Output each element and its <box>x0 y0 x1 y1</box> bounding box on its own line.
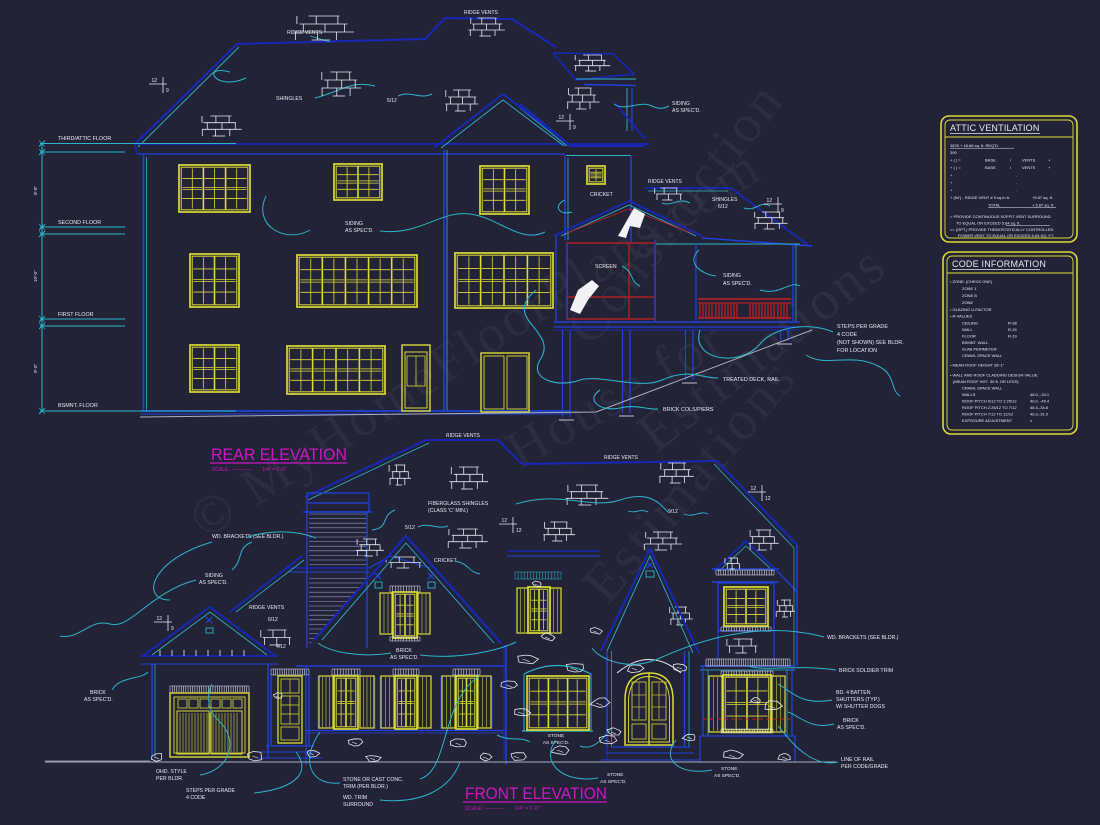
svg-text:.: . <box>1016 188 1017 193</box>
svg-text:RIDGE VENTS: RIDGE VENTS <box>446 433 481 439</box>
svg-text:AS SPEC'D.: AS SPEC'D. <box>714 773 741 779</box>
svg-text:CODE INFORMATION: CODE INFORMATION <box>952 259 1046 269</box>
svg-text:R-19: R-19 <box>1008 334 1017 339</box>
svg-text:9: 9 <box>781 208 784 214</box>
svg-text:SURROUND: SURROUND <box>343 802 373 808</box>
svg-text:== (OPT.) PROVIDE THEMOSTATICA: == (OPT.) PROVIDE THEMOSTATICALLY CONTRO… <box>950 227 1054 232</box>
svg-text:BRICK: BRICK <box>396 648 412 654</box>
svg-text:300: 300 <box>950 150 957 155</box>
svg-text:ROOF PITCH 7/12 TO 12/12: ROOF PITCH 7/12 TO 12/12 <box>962 412 1014 417</box>
svg-text:WD. TRIM: WD. TRIM <box>343 795 367 801</box>
svg-text:STEPS PER GRADE: STEPS PER GRADE <box>837 324 888 330</box>
svg-text:R-38: R-38 <box>1008 321 1017 326</box>
svg-text:AS SPEC'D.: AS SPEC'D. <box>390 655 419 661</box>
svg-text:SCALE:: SCALE: <box>212 467 230 473</box>
svg-text:POWER VENT TO EQUAL OR EXCEED: POWER VENT TO EQUAL OR EXCEED 5.84 SQ. F… <box>958 233 1054 238</box>
svg-text:12: 12 <box>501 518 507 524</box>
svg-text:REAR ELEVATION: REAR ELEVATION <box>211 445 347 464</box>
svg-text:RIDGE VENTS: RIDGE VENTS <box>464 10 499 16</box>
svg-text:.: . <box>1016 180 1017 185</box>
svg-text:WALL: WALL <box>962 327 974 332</box>
svg-text:CRICKET: CRICKET <box>590 192 614 198</box>
svg-text:AS SPEC'D.: AS SPEC'D. <box>199 580 228 586</box>
svg-text:12: 12 <box>766 198 772 204</box>
svg-text:BRICK SOLDIER TRIM: BRICK SOLDIER TRIM <box>839 668 893 674</box>
svg-text:(CLASS 'C' MIN.): (CLASS 'C' MIN.) <box>428 508 468 514</box>
svg-text:BRICK: BRICK <box>843 718 859 724</box>
svg-text:STONE: STONE <box>607 772 623 778</box>
svg-text:PER CODE/GRADE: PER CODE/GRADE <box>841 764 889 770</box>
svg-text:SHUTTERS (TYP.): SHUTTERS (TYP.) <box>836 697 880 703</box>
svg-text:R-15: R-15 <box>1008 327 1017 332</box>
svg-text:TRIM (PER BLDR.): TRIM (PER BLDR.) <box>343 784 388 790</box>
svg-text:5/12: 5/12 <box>405 525 415 531</box>
svg-text:TOTAL: TOTAL <box>988 203 1001 208</box>
svg-text:TREATED DECK, RAIL: TREATED DECK, RAIL <box>723 377 779 383</box>
svg-text:• WALL AND ROOF CLADDING DESIG: • WALL AND ROOF CLADDING DESIGN VALUE: <box>950 373 1038 378</box>
svg-text:(NOT SHOWN) SEE BLDR.: (NOT SHOWN) SEE BLDR. <box>837 340 904 346</box>
svg-text:9'-0": 9'-0" <box>33 363 38 373</box>
svg-text:SIDING: SIDING <box>672 101 690 107</box>
svg-text:PER BLDR.: PER BLDR. <box>156 776 183 782</box>
svg-text:AS SPEC'D.: AS SPEC'D. <box>837 725 866 731</box>
svg-text:• R-VALUES: • R-VALUES <box>950 314 973 319</box>
svg-text:BSMNT. FLOOR: BSMNT. FLOOR <box>58 403 98 409</box>
svg-text:ATTIC VENTILATION: ATTIC VENTILATION <box>950 123 1040 133</box>
svg-text:FIRST FLOOR: FIRST FLOOR <box>58 312 94 318</box>
svg-text:FRONT ELEVATION: FRONT ELEVATION <box>465 784 607 803</box>
svg-text:9: 9 <box>166 88 169 94</box>
svg-text:+5.87 sq. ft.: +5.87 sq. ft. <box>1032 195 1053 200</box>
svg-text:------------: ------------ <box>232 467 252 473</box>
svg-text:• MEAN ROOF HEIGHT 28'-1": • MEAN ROOF HEIGHT 28'-1" <box>950 363 1005 368</box>
svg-text:EXPOSURE ADJUSTMENT: EXPOSURE ADJUSTMENT <box>962 418 1013 423</box>
svg-text:THIRD/ATTIC FLOOR: THIRD/ATTIC FLOOR <box>58 136 111 142</box>
svg-text:+ ( ) =: + ( ) = <box>950 165 961 170</box>
svg-text:ZONE 1: ZONE 1 <box>962 286 977 291</box>
svg-text:9: 9 <box>171 626 174 632</box>
svg-text:9/12: 9/12 <box>668 509 678 515</box>
svg-text:+ (54') - RIDGE VENT # 9 sq.in: + (54') - RIDGE VENT # 9 sq.in.ft. <box>950 195 1010 200</box>
svg-text:STONE: STONE <box>721 766 737 772</box>
svg-text:CRAWL SPACE WALL: CRAWL SPACE WALL <box>962 353 1003 358</box>
svg-text:STONE: STONE <box>548 733 564 739</box>
svg-text:48.0, -34.1: 48.0, -34.1 <box>1030 392 1050 397</box>
svg-text:6/12: 6/12 <box>268 617 278 623</box>
svg-text:SHINGLES: SHINGLES <box>276 96 303 102</box>
svg-text:SLAB PERIMETER: SLAB PERIMETER <box>962 347 997 352</box>
svg-text:SIDING: SIDING <box>205 573 223 579</box>
svg-text:AS SPEC'D.: AS SPEC'D. <box>672 108 701 114</box>
svg-text:BRICK: BRICK <box>90 690 106 696</box>
svg-text:5/12: 5/12 <box>387 98 397 104</box>
svg-text:ROOF PITCH 2.25/12 TO 7/12: ROOF PITCH 2.25/12 TO 7/12 <box>962 405 1017 410</box>
svg-text:BRICK COLS/PIERS: BRICK COLS/PIERS <box>663 407 714 413</box>
svg-text:.: . <box>1016 173 1017 178</box>
svg-text:CRAWL SPACE WALL: CRAWL SPACE WALL <box>962 386 1003 391</box>
svg-text:• ZONE: (CHECK ONE): • ZONE: (CHECK ONE) <box>950 279 993 284</box>
svg-text:+ 5.87 sq. ft.: + 5.87 sq. ft. <box>1032 203 1054 208</box>
svg-text:4 CODE: 4 CODE <box>186 795 206 801</box>
svg-text:ZONE: ZONE <box>962 300 973 305</box>
svg-text:LINE OF RAIL: LINE OF RAIL <box>841 757 874 763</box>
svg-text:CRICKET: CRICKET <box>434 558 458 564</box>
svg-text:12: 12 <box>156 616 162 622</box>
svg-text:W/ SHUTTER DOGS: W/ SHUTTER DOGS <box>836 704 886 710</box>
svg-text:TO EQUAL OR EXCEED 5.84 sq. f: TO EQUAL OR EXCEED 5.84 sq. ft. <box>956 221 1020 226</box>
svg-text:= PROVIDE CONTINUOUS SOFFIT V: = PROVIDE CONTINUOUS SOFFIT VENT SURROUN… <box>950 214 1051 219</box>
svg-text:SIDING: SIDING <box>723 273 741 279</box>
svg-text:BASE.: BASE. <box>985 158 997 163</box>
svg-text:4 CODE: 4 CODE <box>837 332 857 338</box>
svg-text:SECOND FLOOR: SECOND FLOOR <box>58 220 101 226</box>
svg-text:SCALE:: SCALE: <box>465 806 483 812</box>
svg-text:9'-8": 9'-8" <box>33 185 38 195</box>
svg-text:12: 12 <box>151 78 157 84</box>
svg-text:STEPS PER GRADE: STEPS PER GRADE <box>186 788 236 794</box>
svg-text:6/12: 6/12 <box>718 204 728 210</box>
svg-text:CEILING: CEILING <box>962 321 978 326</box>
svg-text:48.4,-34.8: 48.4,-34.8 <box>1030 405 1049 410</box>
svg-text:ROOF PITCH 0/12 TO 2.25/12: ROOF PITCH 0/12 TO 2.25/12 <box>962 399 1017 404</box>
svg-text:• GLAZING U-FACTOR: • GLAZING U-FACTOR <box>950 307 992 312</box>
svg-text:10'-0": 10'-0" <box>33 270 38 282</box>
svg-text:VENTS: VENTS <box>1022 158 1036 163</box>
svg-text:SCREEN: SCREEN <box>595 264 617 270</box>
svg-text:+ ( ) =: + ( ) = <box>950 158 961 163</box>
svg-text:x: x <box>1030 418 1032 423</box>
svg-text:------------: ------------ <box>485 806 505 812</box>
svg-text:FIBERGLASS SHINGLES: FIBERGLASS SHINGLES <box>428 501 489 507</box>
svg-text:AS SPEC'D.: AS SPEC'D. <box>723 281 752 287</box>
svg-text:AS SPEC'D.: AS SPEC'D. <box>84 697 113 703</box>
svg-text:12: 12 <box>750 486 756 492</box>
svg-text:BD. 4 BATTEN: BD. 4 BATTEN <box>836 690 871 696</box>
svg-text:RIDGE VENTS: RIDGE VENTS <box>604 455 639 461</box>
svg-text:SIDING: SIDING <box>345 221 363 227</box>
svg-text:3876 + 18.68 sq. ft. REQ'D.: 3876 + 18.68 sq. ft. REQ'D. <box>950 143 999 148</box>
svg-text:BASE.: BASE. <box>985 165 997 170</box>
svg-text:FOR LOCATION: FOR LOCATION <box>837 348 877 354</box>
svg-text:40.0, -45.4: 40.0, -45.4 <box>1030 399 1050 404</box>
svg-text:FLOOR: FLOOR <box>962 334 976 339</box>
svg-text:BSMNT. WALL: BSMNT. WALL <box>962 340 989 345</box>
svg-text:AS SPEC'D.: AS SPEC'D. <box>543 740 570 746</box>
svg-text:STONE OR CAST CONC.: STONE OR CAST CONC. <box>343 777 403 783</box>
svg-text:ZONE B: ZONE B <box>962 293 977 298</box>
svg-text:AS SPEC'D.: AS SPEC'D. <box>345 228 374 234</box>
svg-text:WD. BRACKETS (SEE BLDR.): WD. BRACKETS (SEE BLDR.) <box>827 635 899 641</box>
svg-text:9: 9 <box>573 125 576 131</box>
svg-text:RIDGE VENTS: RIDGE VENTS <box>249 605 285 611</box>
svg-text:46.3,-31.0: 46.3,-31.0 <box>1030 412 1049 417</box>
svg-text:WALLS: WALLS <box>962 392 976 397</box>
svg-text:12: 12 <box>516 528 522 534</box>
svg-text:1/4" = 1'-0": 1/4" = 1'-0" <box>515 806 540 812</box>
svg-text:SHINGLES: SHINGLES <box>712 197 738 203</box>
svg-text:RIDGE VENTS: RIDGE VENTS <box>648 179 683 185</box>
svg-text:OHD. STYLE: OHD. STYLE <box>156 769 187 775</box>
svg-text:1/4" = 1'-0": 1/4" = 1'-0" <box>262 467 287 473</box>
svg-text:12: 12 <box>765 496 771 502</box>
svg-text:12: 12 <box>558 115 564 121</box>
svg-text:VENTS: VENTS <box>1022 165 1036 170</box>
svg-text:(MEAN ROOF HGT. 30 ft. OR LESS: (MEAN ROOF HGT. 30 ft. OR LESS) <box>953 379 1019 384</box>
